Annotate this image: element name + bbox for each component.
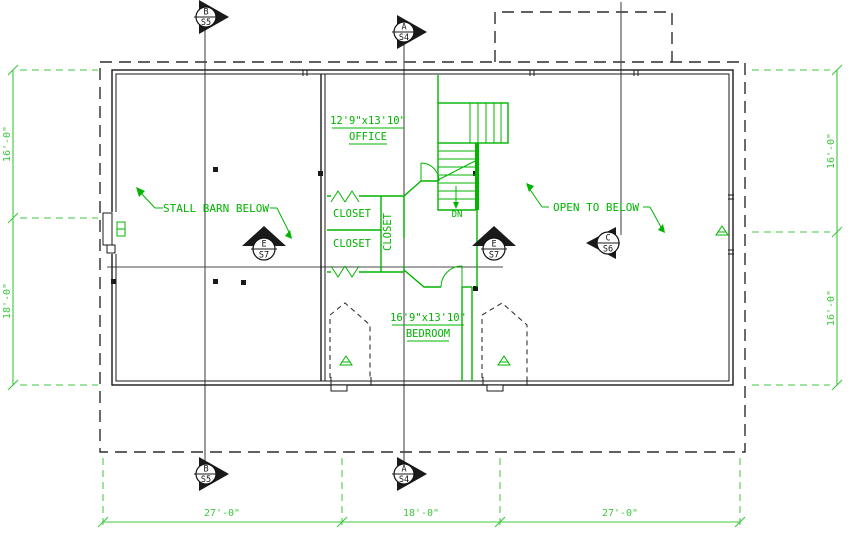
section-cut-lines [107, 2, 621, 464]
svg-text:S4: S4 [399, 475, 409, 485]
delta-symbols [340, 226, 728, 365]
stair-down-arrow [453, 186, 459, 209]
interior-partitions [117, 163, 472, 381]
svg-text:C: C [605, 234, 610, 244]
svg-text:OPEN TO BELOW: OPEN TO BELOW [553, 201, 639, 214]
dim-bottom-right: 27'-0" [602, 508, 638, 519]
svg-text:B: B [203, 465, 208, 475]
bedroom-wall [462, 287, 472, 381]
svg-text:S7: S7 [489, 251, 499, 261]
svg-text:A: A [401, 23, 406, 33]
dimension-right: 16'-0" 16'-0" [752, 65, 842, 390]
section-marker-a-bottom: A S4 [392, 457, 427, 491]
stair-upper-flight [438, 103, 508, 143]
dim-right-top: 16'-0" [826, 133, 837, 169]
building-walls [103, 70, 734, 391]
dormer-left [330, 303, 370, 378]
leader-arrow [526, 183, 534, 192]
door-panel [103, 213, 112, 245]
window-sill [331, 385, 347, 391]
leader-notes: STALL BARN BELOW OPEN TO BELOW [136, 183, 665, 239]
svg-text:STALL BARN BELOW: STALL BARN BELOW [163, 202, 269, 215]
svg-text:S5: S5 [201, 475, 211, 485]
leader-arrow [658, 224, 665, 233]
room-labels: 12'9"x13'10" OFFICE 16'9"x13'10" BEDROOM… [330, 115, 466, 341]
bifold-door [331, 191, 345, 202]
structural-posts [111, 167, 478, 291]
section-marker-b-bottom: B S5 [194, 457, 229, 491]
stair-lower-treads [438, 151, 477, 199]
dimension-bottom: 27'-0" 18'-0" 27'-0" [98, 458, 745, 527]
hallway-walls [404, 163, 462, 287]
dim-left-top: 16'-0" [2, 126, 13, 162]
dim-bottom-middle: 18'-0" [403, 508, 439, 519]
closet-lower-label: CLOSET [333, 238, 372, 250]
svg-text:S4: S4 [399, 33, 409, 43]
floor-plan-drawing: DN [0, 0, 862, 548]
office-dims-label: 12'9"x13'10" [330, 115, 406, 127]
svg-text:A: A [401, 465, 406, 475]
section-marker-a-top: A S4 [392, 15, 427, 49]
stairwell-wall [475, 143, 479, 210]
top-wall-joints [303, 70, 638, 76]
door-panel [107, 245, 115, 253]
bifold-door [345, 266, 359, 277]
dim-left-bottom: 18'-0" [2, 283, 13, 319]
office-door [421, 163, 439, 181]
open-to-below-note: OPEN TO BELOW [526, 183, 665, 233]
dormer-right [482, 303, 527, 378]
delta-symbol [498, 356, 510, 365]
svg-text:S5: S5 [201, 18, 211, 28]
bifold-door [345, 191, 359, 202]
stair-break-line [438, 160, 477, 180]
bedroom-dims-label: 16'9"x13'10" [390, 312, 466, 324]
dim-bottom-left: 27'-0" [204, 508, 240, 519]
dimension-left: 16'-0" 18'-0" [2, 65, 98, 390]
bedroom-door [441, 266, 462, 287]
svg-text:B: B [203, 8, 208, 18]
roof-overhang-outline [100, 12, 745, 452]
section-marker-e-right: E S7 [472, 226, 516, 261]
bottom-wall-windows [331, 377, 527, 391]
section-marker-e-left: E S7 [242, 226, 286, 261]
delta-symbol [340, 356, 352, 365]
svg-text:E: E [261, 240, 266, 250]
dim-right-bottom: 16'-0" [826, 290, 837, 326]
svg-text:E: E [491, 240, 496, 250]
svg-text:S7: S7 [259, 251, 269, 261]
closet-upper-label: CLOSET [333, 208, 372, 220]
section-marker-c: C S6 [586, 227, 620, 259]
bifold-door [331, 266, 345, 277]
window-sill [487, 385, 503, 391]
bedroom-name-label: BEDROOM [406, 328, 450, 340]
office-name-label: OFFICE [349, 131, 387, 143]
closet-vertical-label: CLOSET [382, 212, 394, 251]
delta-symbol [716, 226, 728, 235]
section-marker-b-top: B S5 [194, 0, 229, 34]
stair-upper-treads [470, 103, 501, 143]
svg-text:S6: S6 [603, 245, 613, 255]
stair-down-label: DN [452, 210, 463, 220]
